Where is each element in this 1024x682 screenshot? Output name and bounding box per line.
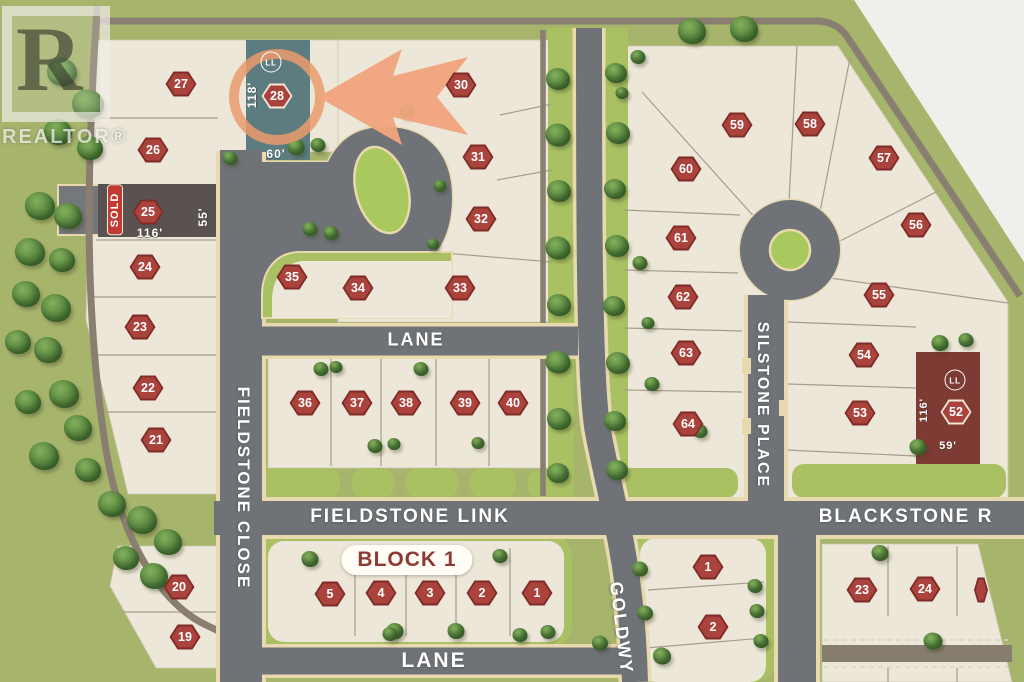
lot-badge-56: 56	[901, 212, 932, 238]
lot-badge-19: 19	[170, 624, 201, 650]
lot-badge-3: 3	[415, 580, 446, 606]
lot-badge-53: 53	[845, 400, 876, 426]
lot-badge-31: 31	[463, 144, 494, 170]
lot-badge-64: 64	[673, 411, 704, 437]
lot-badge-30: 30	[446, 72, 477, 98]
lot-badge-26: 26	[138, 137, 169, 163]
lot-badge-23: 23	[125, 314, 156, 340]
realtor-logo-text: REALTOR®	[2, 126, 128, 149]
lot-badge-58: 58	[795, 111, 826, 137]
lot-badge-1: 1	[522, 580, 553, 606]
lot-badge-59: 59	[722, 112, 753, 138]
lot-badge-34: 34	[343, 275, 374, 301]
lot-badge-22: 22	[133, 375, 164, 401]
lot-badge-layer: 2728302631253224353433232236373839402120…	[0, 0, 1024, 682]
lot-badge-39: 39	[450, 390, 481, 416]
lot-badge-33: 33	[445, 275, 476, 301]
lot-badge-32: 32	[466, 206, 497, 232]
lot-badge-55: 55	[864, 282, 895, 308]
lot-badge-21: 21	[141, 427, 172, 453]
lot-badge-2: 2	[467, 580, 498, 606]
lot-badge-24: 24	[910, 576, 941, 602]
lot-badge-4: 4	[366, 580, 397, 606]
lot-badge-27: 27	[166, 71, 197, 97]
lot-badge-63: 63	[671, 340, 702, 366]
lot-badge-62: 62	[668, 284, 699, 310]
lot-badge-36: 36	[290, 390, 321, 416]
lot-badge-1: 1	[693, 554, 724, 580]
lot-badge-partial	[974, 577, 988, 603]
lot-badge-37: 37	[342, 390, 373, 416]
lot-badge-23: 23	[847, 577, 878, 603]
plat-map: LANE FIELDSTONE LINK LANE BLACKSTONE R F…	[0, 0, 1024, 682]
lot-badge-28: 28	[262, 83, 293, 109]
lot-badge-38: 38	[391, 390, 422, 416]
realtor-watermark: R REALTOR®	[2, 6, 128, 149]
lot-badge-35: 35	[277, 264, 308, 290]
lot-badge-54: 54	[849, 342, 880, 368]
lot-badge-60: 60	[671, 156, 702, 182]
lot-badge-5: 5	[315, 581, 346, 607]
lot-badge-52: 52	[941, 399, 972, 425]
lot-badge-57: 57	[869, 145, 900, 171]
lot-badge-40: 40	[498, 390, 529, 416]
realtor-logo-letter: R	[16, 16, 82, 102]
lot-badge-2: 2	[698, 614, 729, 640]
lot-badge-25: 25	[133, 199, 164, 225]
realtor-logo-icon: R	[2, 6, 110, 122]
lot-badge-61: 61	[666, 225, 697, 251]
lot-badge-20: 20	[164, 574, 195, 600]
lot-badge-24: 24	[130, 254, 161, 280]
